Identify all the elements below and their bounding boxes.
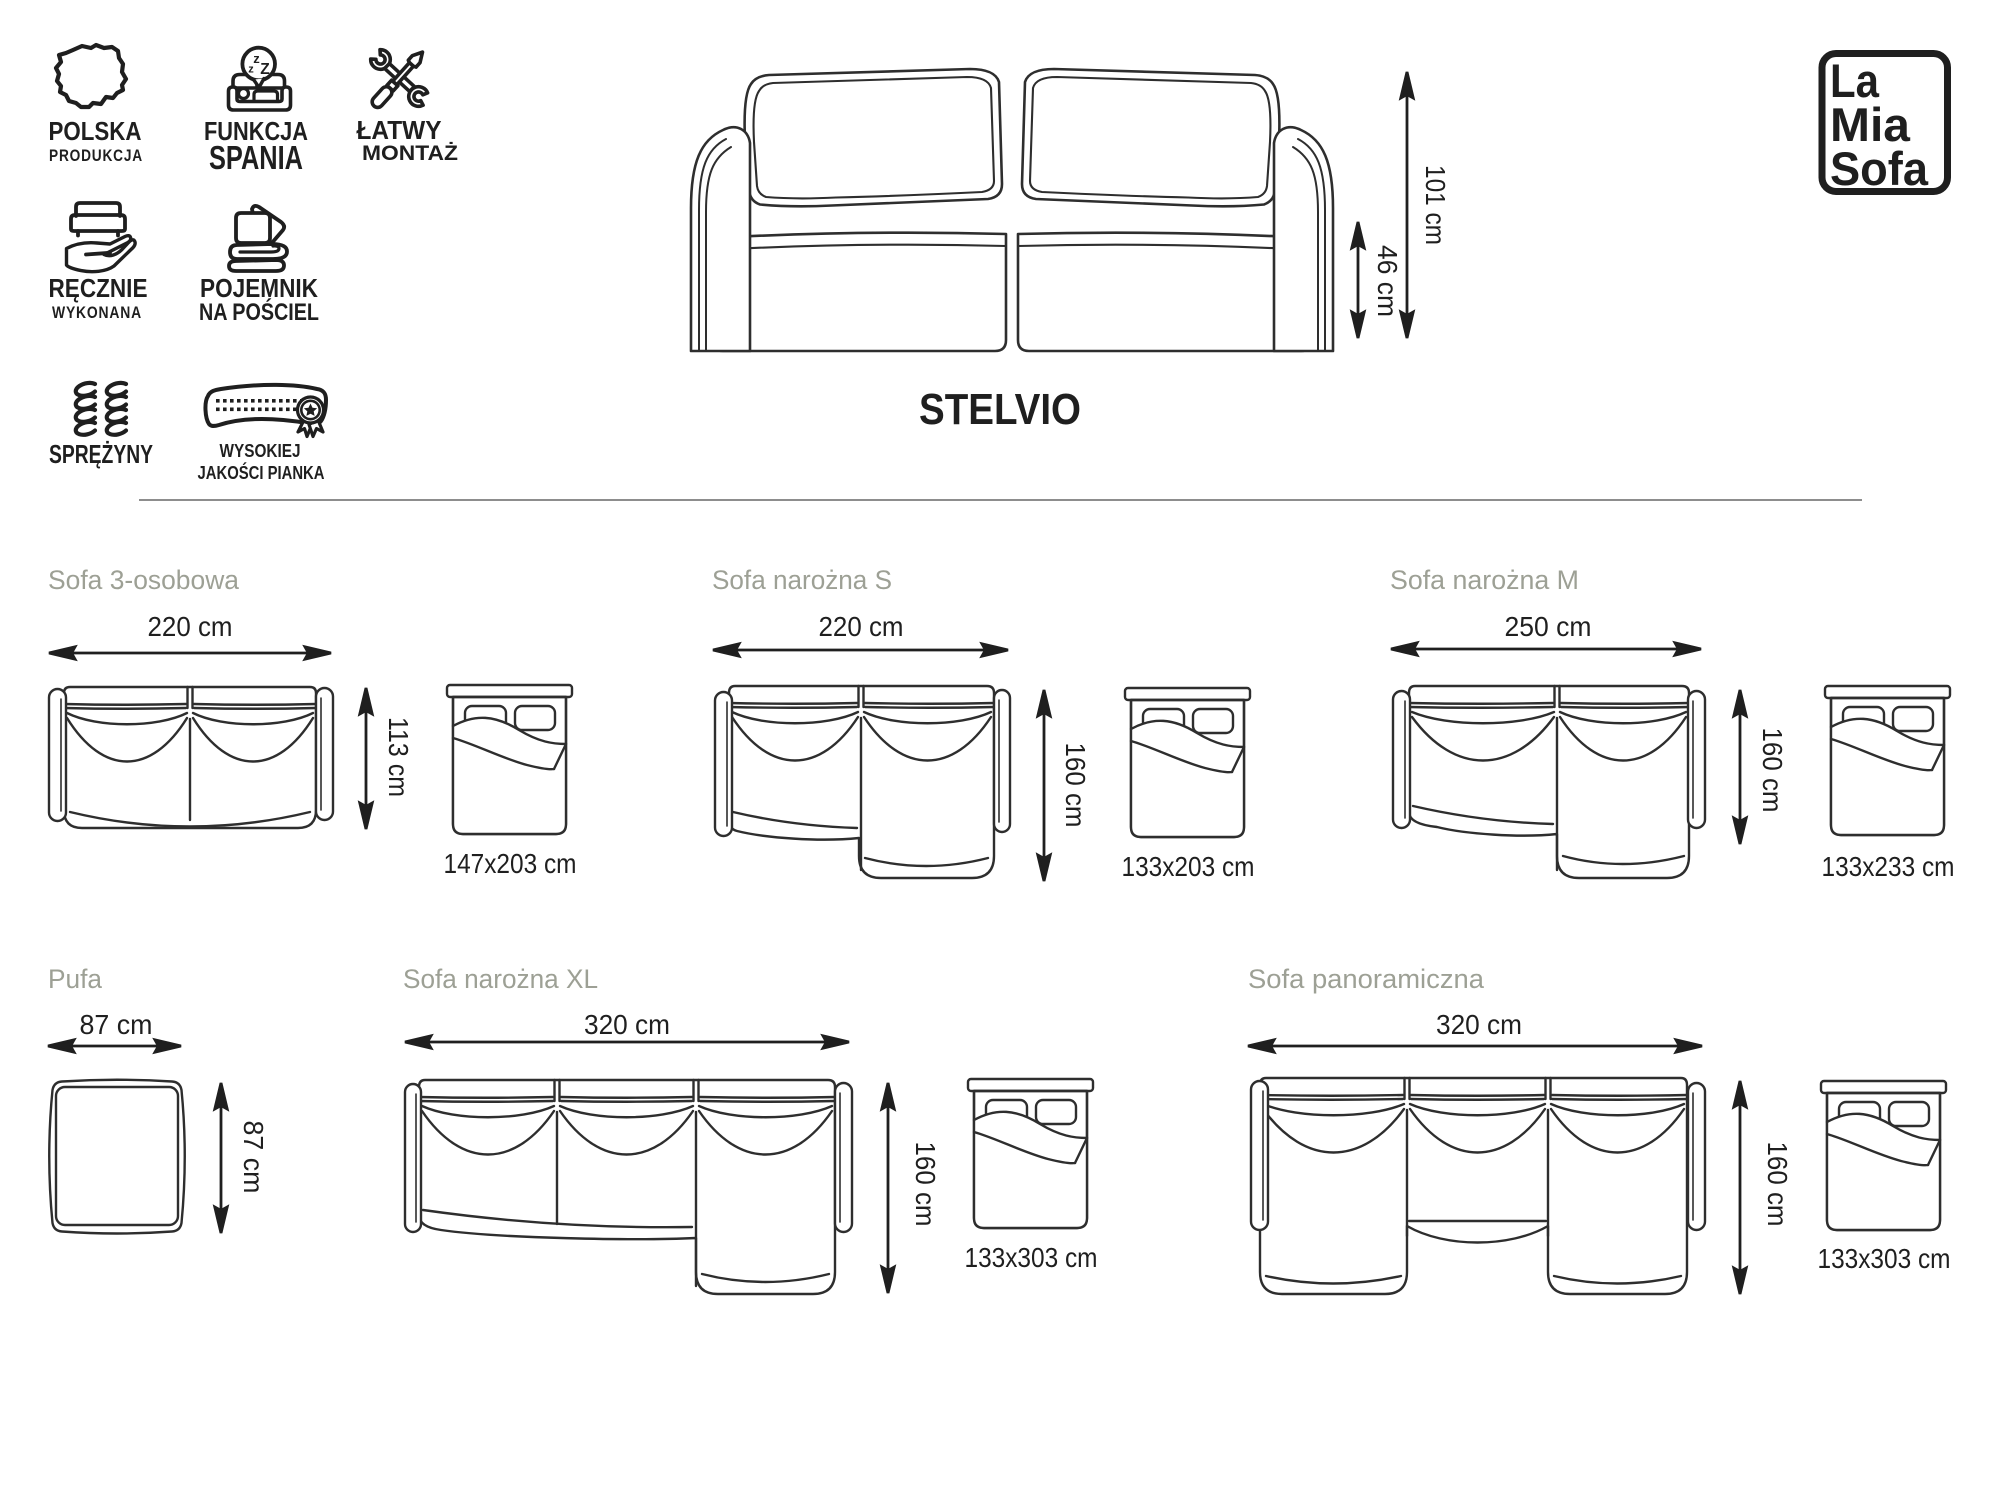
svg-text:Sofa 3-osobowa: Sofa 3-osobowa <box>48 565 239 595</box>
svg-text:220 cm: 220 cm <box>819 611 904 642</box>
svg-text:JAKOŚCI PIANKA: JAKOŚCI PIANKA <box>198 462 325 483</box>
svg-text:133x233 cm: 133x233 cm <box>1822 851 1955 882</box>
svg-text:133x303 cm: 133x303 cm <box>1818 1243 1951 1274</box>
svg-text:z: z <box>248 64 254 76</box>
svg-text:220 cm: 220 cm <box>148 611 233 642</box>
svg-text:87 cm: 87 cm <box>238 1121 269 1194</box>
svg-text:POLSKA: POLSKA <box>49 116 142 146</box>
svg-text:Sofa: Sofa <box>1830 142 1929 195</box>
svg-text:PRODUKCJA: PRODUKCJA <box>49 146 143 165</box>
svg-text:STELVIO: STELVIO <box>919 385 1081 434</box>
svg-text:160 cm: 160 cm <box>1757 728 1788 813</box>
svg-text:Sofa narożna XL: Sofa narożna XL <box>403 964 598 994</box>
svg-text:RĘCZNIE: RĘCZNIE <box>49 273 148 303</box>
svg-text:Sofa narożna M: Sofa narożna M <box>1390 565 1579 595</box>
svg-text:SPRĘŻYNY: SPRĘŻYNY <box>49 439 153 469</box>
svg-text:Z: Z <box>260 61 270 78</box>
svg-text:87 cm: 87 cm <box>80 1009 153 1040</box>
svg-text:160 cm: 160 cm <box>1060 743 1091 828</box>
svg-text:160 cm: 160 cm <box>910 1142 941 1227</box>
svg-text:ŁATWY: ŁATWY <box>357 115 442 145</box>
svg-text:NA POŚCIEL: NA POŚCIEL <box>199 298 319 326</box>
svg-text:z: z <box>253 51 260 66</box>
svg-text:113 cm: 113 cm <box>383 717 414 797</box>
svg-text:160 cm: 160 cm <box>1762 1142 1793 1227</box>
svg-text:320 cm: 320 cm <box>1436 1009 1522 1040</box>
svg-text:Sofa narożna S: Sofa narożna S <box>712 565 892 595</box>
svg-text:46 cm: 46 cm <box>1372 245 1403 317</box>
svg-text:101 cm: 101 cm <box>1420 165 1451 245</box>
svg-text:Pufa: Pufa <box>48 964 102 994</box>
svg-text:133x303 cm: 133x303 cm <box>965 1242 1098 1273</box>
svg-text:147x203 cm: 147x203 cm <box>444 848 577 879</box>
svg-text:MONTAŻ: MONTAŻ <box>362 142 458 165</box>
svg-text:Sofa panoramiczna: Sofa panoramiczna <box>1248 964 1484 994</box>
svg-text:320 cm: 320 cm <box>584 1009 670 1040</box>
svg-text:WYSOKIEJ: WYSOKIEJ <box>220 441 301 461</box>
svg-text:SPANIA: SPANIA <box>209 139 303 176</box>
svg-text:250 cm: 250 cm <box>1505 611 1592 642</box>
svg-text:133x203 cm: 133x203 cm <box>1122 851 1255 882</box>
svg-text:WYKONANA: WYKONANA <box>52 303 142 322</box>
